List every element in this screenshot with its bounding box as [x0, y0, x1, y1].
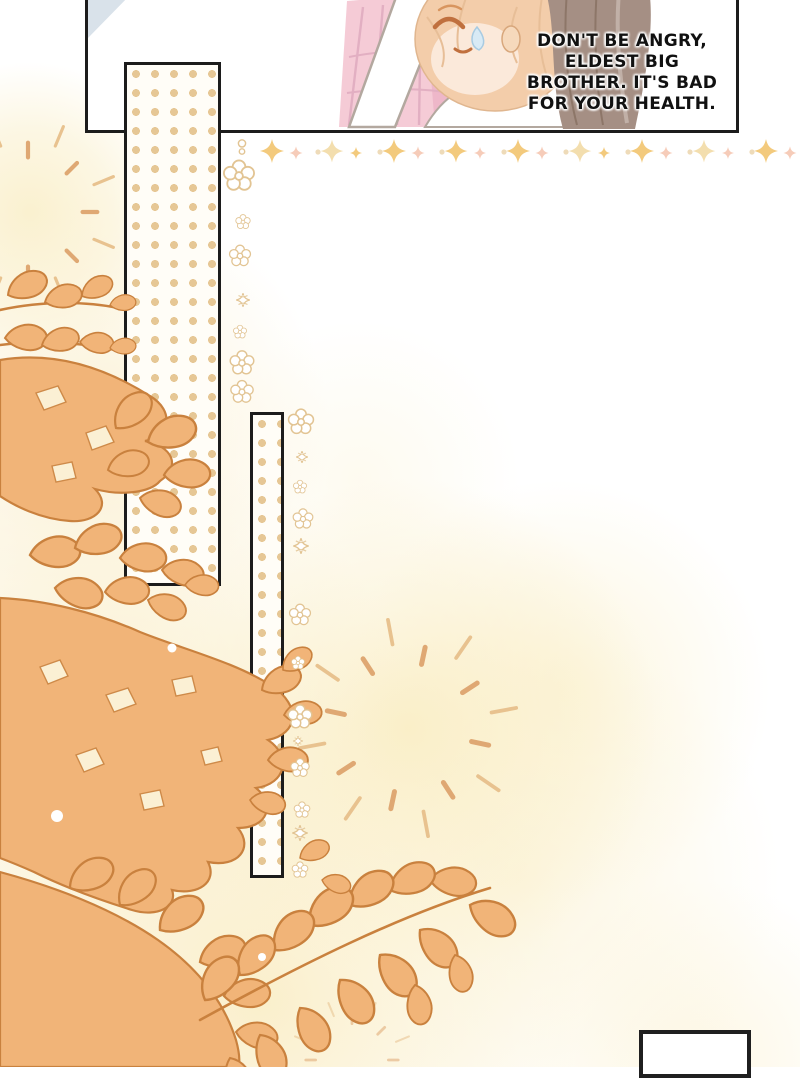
sunburst-top-left	[0, 127, 113, 298]
sunburst-center	[287, 607, 528, 848]
white-sparkle-dot	[51, 810, 63, 822]
white-sparkle-dot	[258, 953, 266, 961]
bottom-right-panel	[639, 1030, 751, 1078]
white-sparkle-dot	[168, 644, 177, 653]
decor-overlay	[0, 0, 800, 1067]
comic-page: { "speech_bubble": { "lines": ["DON'T BE…	[0, 0, 800, 1067]
sparkle-diamond-row	[260, 139, 797, 163]
leaf-foliage	[0, 267, 522, 1067]
